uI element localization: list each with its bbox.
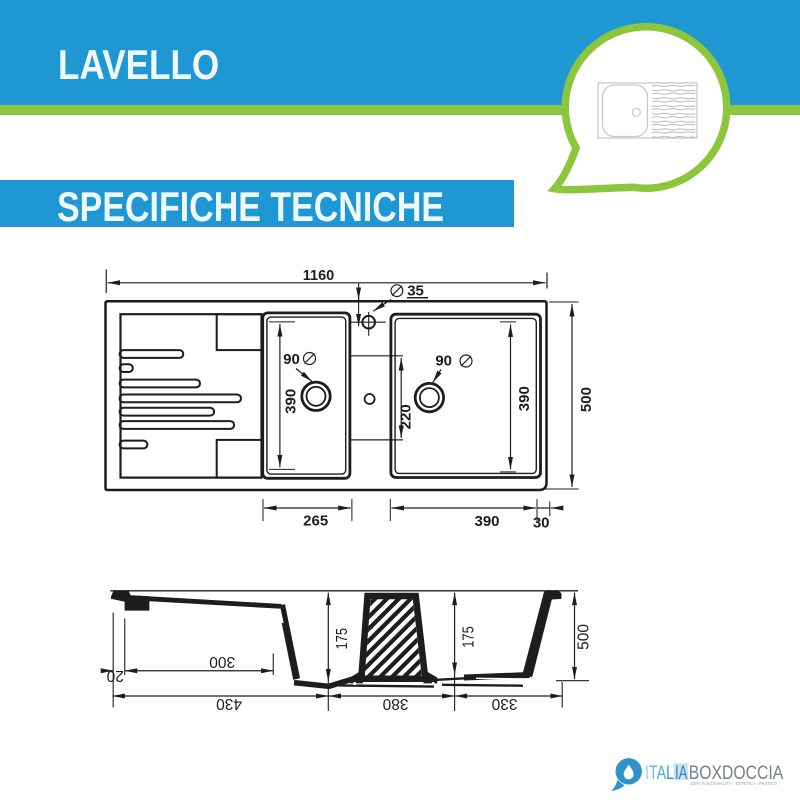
svg-text:30: 30 (533, 515, 550, 532)
svg-text:265: 265 (303, 513, 328, 530)
svg-text:1160: 1160 (303, 267, 335, 284)
svg-text:100% FUNZIONALITA' - ESTETICA: 100% FUNZIONALITA' - ESTETICA - PRATICO (690, 781, 777, 786)
svg-text:IA: IA (675, 762, 688, 784)
svg-text:500: 500 (578, 387, 595, 412)
svg-text:220: 220 (397, 404, 414, 429)
svg-text:ITAL: ITAL (645, 762, 674, 784)
svg-text:430: 430 (216, 695, 242, 712)
svg-text:90: 90 (283, 351, 300, 368)
svg-text:390: 390 (282, 389, 299, 414)
svg-text:390: 390 (516, 386, 533, 411)
svg-text:500: 500 (575, 624, 592, 650)
svg-text:330: 330 (491, 695, 517, 712)
svg-text:20: 20 (106, 667, 124, 684)
svg-text:175: 175 (334, 628, 351, 650)
svg-text:90: 90 (435, 352, 452, 369)
svg-text:380: 380 (382, 695, 408, 712)
svg-text:175: 175 (461, 626, 478, 648)
svg-text:300: 300 (209, 653, 235, 670)
svg-text:35: 35 (407, 283, 424, 300)
svg-text:390: 390 (474, 513, 499, 530)
